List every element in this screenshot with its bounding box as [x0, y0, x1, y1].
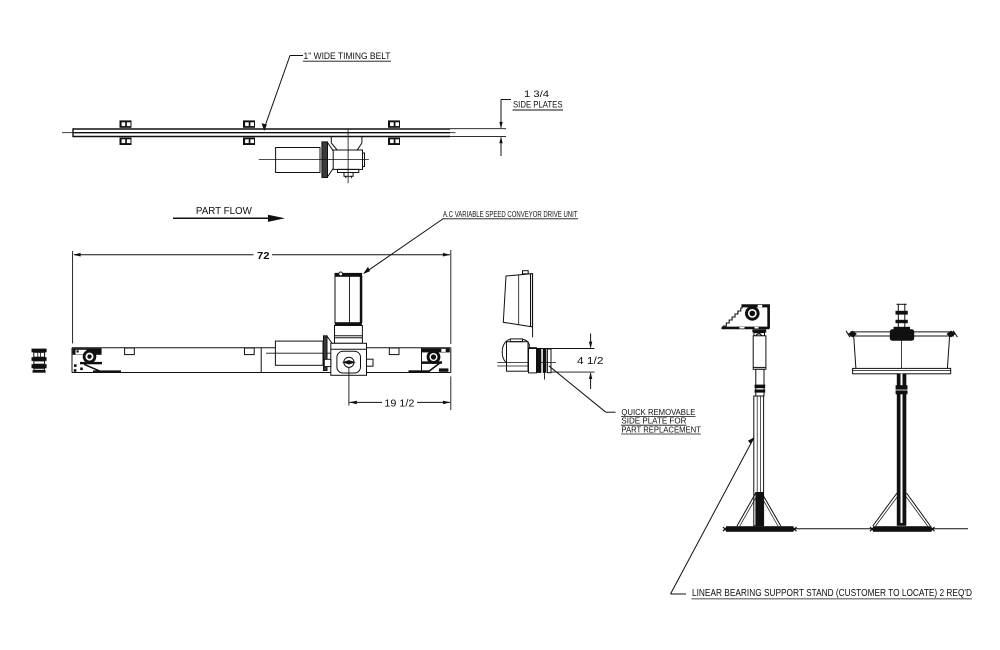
svg-text:1" WIDE TIMING BELT: 1" WIDE TIMING BELT	[304, 50, 391, 61]
svg-text:LINEAR BEARING SUPPORT STAN: LINEAR BEARING SUPPORT STAND (CUSTOMER T…	[692, 588, 972, 599]
svg-text:4 1/2: 4 1/2	[577, 356, 604, 367]
svg-text:PART FLOW: PART FLOW	[196, 206, 252, 217]
svg-text:SIDE PLATES: SIDE PLATES	[513, 99, 563, 110]
svg-text:A.C VARIABLE SPEED CONVEYOR DR: A.C VARIABLE SPEED CONVEYOR DRIVE UNIT	[443, 209, 578, 219]
svg-text:PART REPLACEMENT: PART REPLACEMENT	[621, 425, 701, 435]
svg-text:1 3/4: 1 3/4	[524, 88, 549, 99]
svg-text:72: 72	[257, 251, 270, 262]
svg-text:19 1/2: 19 1/2	[384, 398, 414, 409]
